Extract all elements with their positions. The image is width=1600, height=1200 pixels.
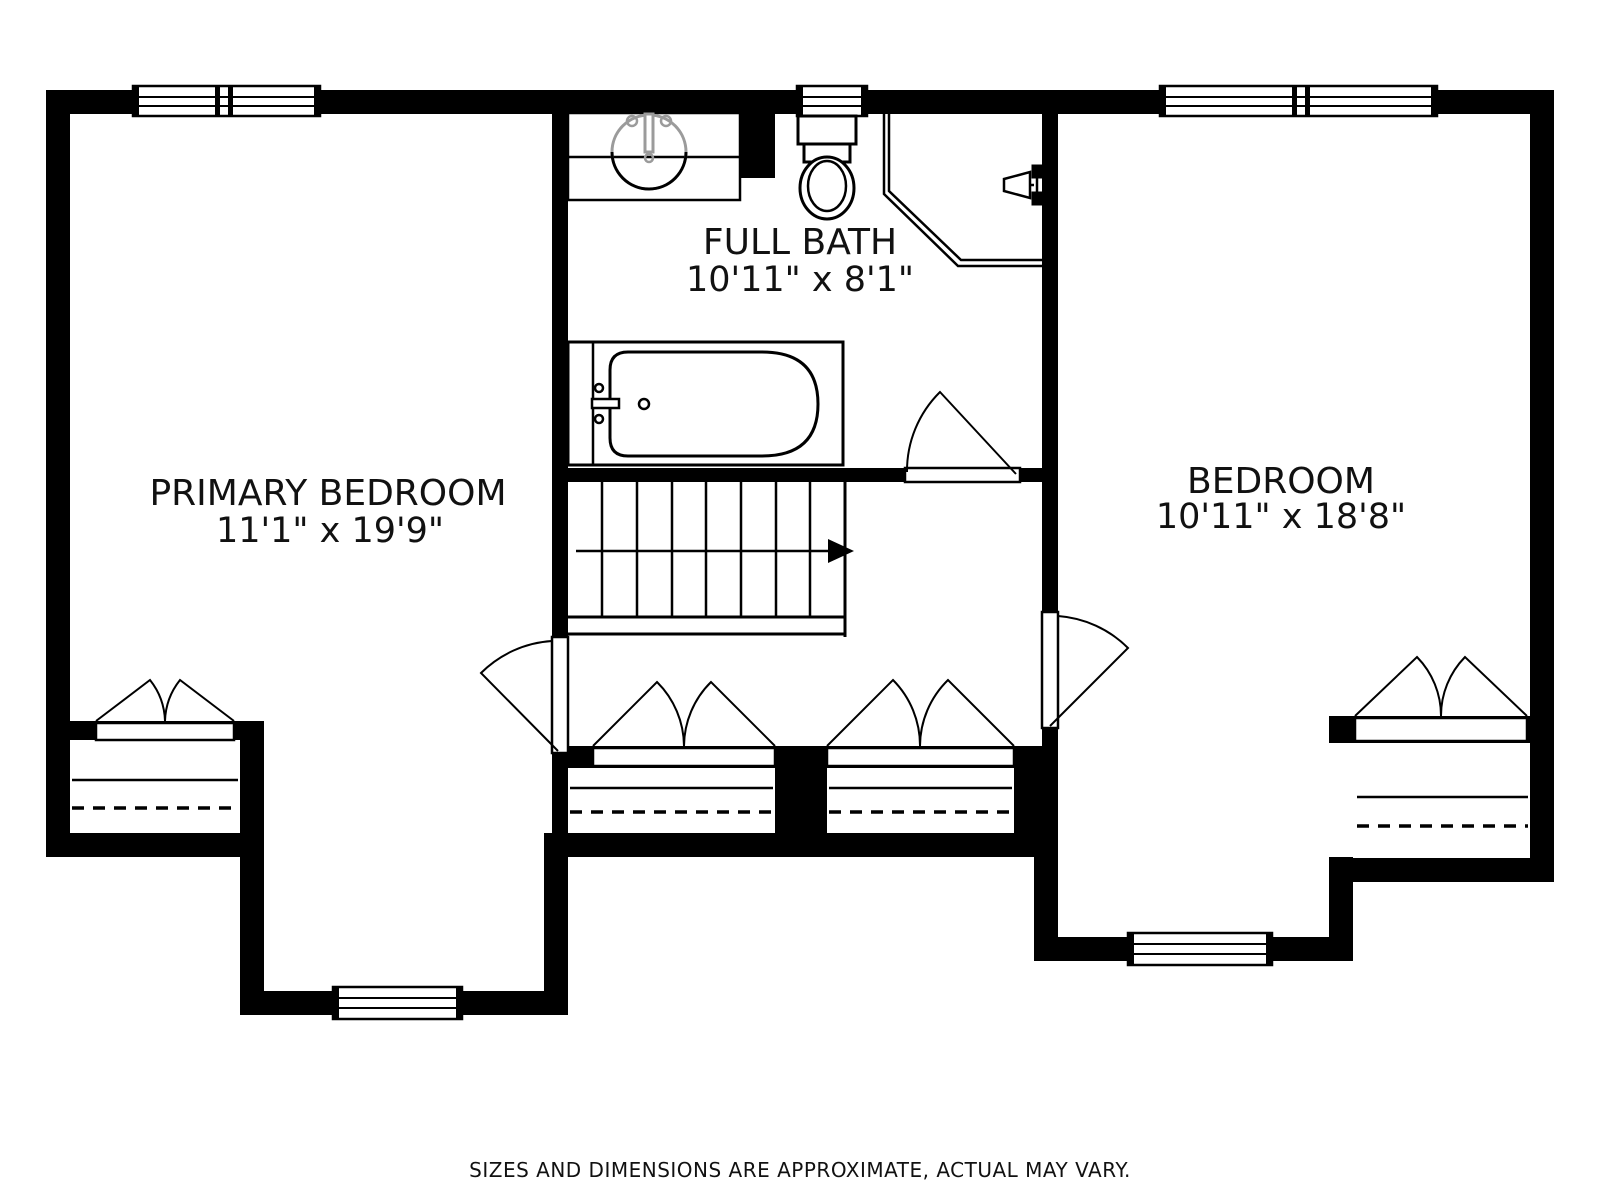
- closet-bedroom: [1355, 657, 1528, 826]
- disclaimer-text: SIZES AND DIMENSIONS ARE APPROXIMATE, AC…: [469, 1158, 1131, 1182]
- swing-door-primary-bedroom: [481, 637, 568, 753]
- sink-vanity-icon: [568, 113, 740, 200]
- toilet-icon: [798, 116, 856, 219]
- shower-head-icon: [1004, 165, 1042, 205]
- full-bath-dimensions: 10'11" x 8'1": [686, 260, 914, 300]
- full-bath-label: FULL BATH: [703, 222, 897, 263]
- stairs: [568, 482, 854, 637]
- window: [133, 86, 320, 116]
- primary-bedroom-dimensions: 11'1" x 19'9": [216, 511, 444, 551]
- window: [1160, 86, 1437, 116]
- closet-primary-bedroom: [72, 680, 238, 808]
- window: [797, 86, 867, 116]
- bedroom-label: BEDROOM: [1187, 461, 1375, 502]
- window: [1128, 933, 1272, 965]
- swing-door-bath: [905, 392, 1020, 482]
- closet-hall-left: [570, 682, 775, 812]
- stair-direction-arrow: [576, 539, 854, 563]
- primary-bedroom-label: PRIMARY BEDROOM: [149, 473, 506, 514]
- bathtub-icon: [568, 342, 843, 465]
- floorplan-canvas: PRIMARY BEDROOM 11'1" x 19'9" FULL BATH …: [0, 0, 1600, 1200]
- swing-door-bedroom: [1042, 612, 1128, 728]
- bedroom-dimensions: 10'11" x 18'8": [1156, 497, 1406, 537]
- window: [333, 987, 462, 1019]
- corner-shower-icon: [884, 114, 1042, 266]
- floorplan-page: PRIMARY BEDROOM 11'1" x 19'9" FULL BATH …: [0, 0, 1600, 1200]
